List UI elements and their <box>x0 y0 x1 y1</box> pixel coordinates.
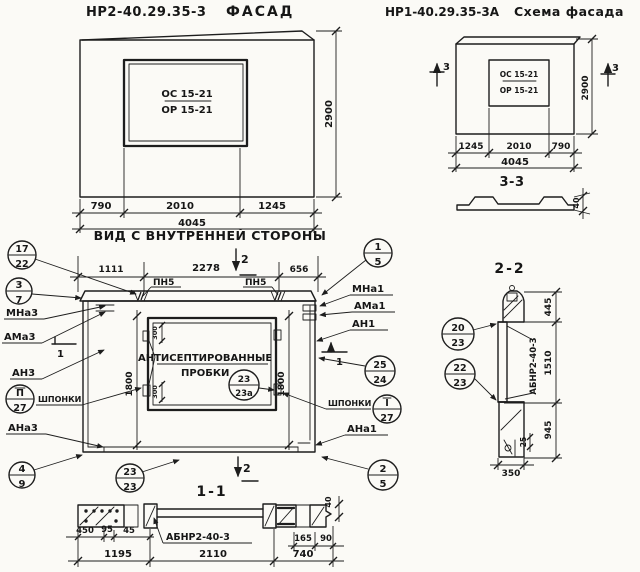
section-1-1-profile <box>78 504 331 528</box>
drawing-sheet: НР2-40.29.35-3 ФАСАД ОС 15-21 ОР 15-21 7… <box>0 0 640 572</box>
facade-window-mark-top: ОС 15-21 <box>161 89 212 100</box>
callout-1-5-top: 1 <box>375 242 382 253</box>
callout-4-9-bottom: 9 <box>19 479 26 490</box>
schema-height-dim: 2900 <box>576 35 598 138</box>
part-code-1-1: АБНР2-40-3 <box>166 532 230 543</box>
inner-view: ВИД С ВНУТРЕННЕЙ СТОРОНЫ 1111 2278 656 2 <box>52 228 347 481</box>
technical-drawing: НР2-40.29.35-3 ФАСАД ОС 15-21 ОР 15-21 7… <box>0 0 640 572</box>
ama1-text: АМа1 <box>354 301 385 312</box>
section-1-1: 1-1 АБНР2-40-3 <box>66 484 344 567</box>
inner-marker-bottom-num: 2 <box>243 462 251 475</box>
label-shponki-right: ШПОНКИ <box>283 393 371 409</box>
shponki-right-text: ШПОНКИ <box>328 399 371 408</box>
callout-22-23-bottom: 23 <box>453 378 466 389</box>
section-2-2-part-label: АБНР2-40-3 <box>505 326 539 399</box>
dim-450: 450 <box>76 526 94 536</box>
section-2-2-label: 2-2 <box>494 261 525 277</box>
dim-1800-right: 1800 <box>277 371 287 396</box>
dim-350: 350 <box>502 469 521 479</box>
inner-panel-bottom-ledge <box>88 443 310 452</box>
facade-dim-mid: 2010 <box>166 201 194 212</box>
inner-section-marker-left: 1 <box>52 337 76 360</box>
schema-section-marker-left: 3 <box>430 62 450 86</box>
facade-dim-right: 1245 <box>258 201 286 212</box>
callout-25-24: 25 24 <box>319 356 395 386</box>
inner-corner-strips-left <box>96 305 114 311</box>
antiseptic-note: АНТИСЕПТИРОВАННЫЕ ПРОБКИ <box>138 338 272 384</box>
inner-groove-right <box>271 291 285 301</box>
callout-3-7-bottom: 7 <box>16 295 23 306</box>
dim-45: 45 <box>123 526 135 536</box>
callout-23-23-top: 23 <box>123 467 136 478</box>
section-2-2-dims: 445 1510 945 25 350 <box>490 288 562 479</box>
section-1-1-label: 1-1 <box>196 484 227 500</box>
label-ama1: АМа1 <box>320 301 395 315</box>
an1-text: АН1 <box>352 319 375 330</box>
section-3-3-profile <box>457 197 574 210</box>
facade-height-dim: 2900 <box>316 27 342 201</box>
schema-bottom-dims: 1245 2010 790 4045 <box>448 108 582 172</box>
inner-section-marker-right: 1 <box>322 343 347 368</box>
callout-23-23a-bottom: 23а <box>235 389 253 399</box>
callout-20-23-bottom: 23 <box>451 338 464 349</box>
label-an1: АН1 <box>317 319 388 341</box>
inner-side-dim-right: 1800 <box>277 310 293 450</box>
schema-panel-bevel <box>456 37 580 44</box>
schema-marker-right-num: 3 <box>612 63 619 74</box>
facade-view: НР2-40.29.35-3 ФАСАД ОС 15-21 ОР 15-21 7… <box>72 4 342 233</box>
callout-22-23-top: 22 <box>453 363 466 374</box>
callout-II-27-top: П <box>16 388 24 399</box>
schema-code: НР1-40.29.35-3А <box>385 5 500 19</box>
schema-dim-left: 1245 <box>458 142 483 152</box>
callout-I-27-bottom: 27 <box>380 413 393 424</box>
inner-marker-top-num: 2 <box>241 253 249 266</box>
mna3-text: МНа3 <box>6 308 38 319</box>
label-mna3: МНа3 <box>4 306 105 319</box>
facade-window-mark-bottom: ОР 15-21 <box>161 105 212 116</box>
inner-dim-1111: 1111 <box>98 265 123 275</box>
schema-dim-mid: 2010 <box>506 142 531 152</box>
callout-II-27: П 27 <box>6 385 34 414</box>
dim-40: 40 <box>324 496 333 508</box>
schema-dim-right: 790 <box>552 142 571 152</box>
section-2-2: 2-2 20 23 22 23 АБНР <box>442 261 562 479</box>
facade-code: НР2-40.29.35-3 <box>86 5 206 20</box>
section-1-1-part-label: АБНР2-40-3 <box>154 518 252 543</box>
callout-23-23a: 23 23а <box>229 370 274 400</box>
schema-dim-height: 2900 <box>581 75 591 100</box>
dim-300-top: 300 <box>151 326 159 340</box>
ama3-text: АМа3 <box>4 332 35 343</box>
inner-dim-2278: 2278 <box>192 263 220 274</box>
callout-17-22-top: 17 <box>15 244 28 255</box>
callout-20-23: 20 23 <box>442 318 496 350</box>
schema-window-mark-top: ОС 15-21 <box>500 70 538 79</box>
an3-text: АН3 <box>12 368 35 379</box>
callout-3-7: 3 7 <box>6 278 81 306</box>
schema-view: НР1-40.29.35-3А Схема фасада ОС 15-21 ОР… <box>385 4 624 219</box>
pn5-label-right: ПН5 <box>245 278 266 288</box>
callout-20-23-top: 20 <box>451 323 465 334</box>
inner-side-dim-left: 1800 <box>125 310 141 450</box>
shponki-left-text: ШПОНКИ <box>38 395 81 404</box>
section-3-3-label: 3-3 <box>500 175 525 190</box>
dim-1195: 1195 <box>104 549 132 560</box>
dim-740: 740 <box>293 549 314 560</box>
schema-dim-total: 4045 <box>501 157 529 168</box>
schema-section-marker-right: 3 <box>601 63 619 86</box>
schema-window-mark-bottom: ОР 15-21 <box>500 86 538 95</box>
callout-2-5: 2 5 <box>322 457 398 490</box>
inner-section-marker-top: 2 <box>236 249 256 275</box>
dim-95: 95 <box>101 525 113 535</box>
facade-title: ФАСАД <box>226 4 294 20</box>
inner-top-dims: 1111 2278 656 <box>70 256 326 292</box>
antiseptic-note-line2: ПРОБКИ <box>181 368 229 379</box>
facade-panel-bevel <box>82 31 314 40</box>
section-3-3-thickness: 40 <box>572 197 581 209</box>
dim-90: 90 <box>320 534 332 544</box>
callout-23-23a-top: 23 <box>238 375 251 385</box>
facade-window-frame <box>124 60 247 146</box>
dim-300-bottom: 300 <box>151 385 159 399</box>
callout-4-9-top: 4 <box>19 464 26 475</box>
dim-1510: 1510 <box>544 350 554 375</box>
schema-title: Схема фасада <box>514 4 624 19</box>
callout-23-23: 23 23 <box>116 460 179 493</box>
facade-bottom-dims: 790 2010 1245 4045 <box>72 148 322 233</box>
dim-945: 945 <box>544 421 554 440</box>
dim-445: 445 <box>544 298 554 317</box>
schema-marker-left-num: 3 <box>443 62 450 73</box>
callout-II-27-bottom: 27 <box>13 403 26 414</box>
dim-25: 25 <box>519 437 528 447</box>
dim-165: 165 <box>294 534 312 544</box>
callout-1-5-bottom: 5 <box>375 257 382 268</box>
inner-section-marker-bottom: 2 <box>238 457 258 481</box>
callout-2-5-bottom: 5 <box>380 479 387 490</box>
ana1-text: АНа1 <box>347 424 377 435</box>
inner-marker-left-num: 1 <box>57 349 64 360</box>
schema-window-frame <box>489 60 549 106</box>
callout-4-9: 4 9 <box>9 455 82 490</box>
inner-dim-656: 656 <box>290 265 309 275</box>
inner-groove-label-right: ПН5 <box>243 278 278 295</box>
ana3-text: АНа3 <box>8 423 38 434</box>
facade-dim-height: 2900 <box>324 100 335 128</box>
label-ana1: АНа1 <box>316 424 388 445</box>
part-code-2-2: АБНР2-40-3 <box>529 337 539 394</box>
callout-3-7-top: 3 <box>16 280 23 291</box>
callout-23-23-bottom: 23 <box>123 482 136 493</box>
pn5-label-left: ПН5 <box>153 278 174 288</box>
inner-corner-strips-right <box>303 305 316 320</box>
section-2-2-profile <box>498 286 524 458</box>
dim-2110: 2110 <box>199 549 227 560</box>
callout-25-24-bottom: 24 <box>373 375 387 386</box>
callout-I-27-top: I <box>385 398 389 409</box>
inner-groove-label-left: ПН5 <box>143 278 181 296</box>
callout-2-5-top: 2 <box>380 464 387 475</box>
callout-17-22-bottom: 22 <box>15 259 28 270</box>
mna1-text: МНа1 <box>352 284 384 295</box>
facade-dim-left: 790 <box>91 201 112 212</box>
antiseptic-note-line1: АНТИСЕПТИРОВАННЫЕ <box>138 353 272 364</box>
inner-marker-right-num: 1 <box>336 357 343 368</box>
callout-25-24-top: 25 <box>373 360 386 371</box>
section-3-3-thickness-dim: 40 <box>572 188 590 219</box>
callout-22-23: 22 23 <box>445 359 496 400</box>
dim-1800-left: 1800 <box>125 371 135 396</box>
callout-I-27: I 27 <box>373 395 401 424</box>
inner-view-title: ВИД С ВНУТРЕННЕЙ СТОРОНЫ <box>94 228 327 243</box>
facade-window-frame-inner <box>129 64 243 141</box>
